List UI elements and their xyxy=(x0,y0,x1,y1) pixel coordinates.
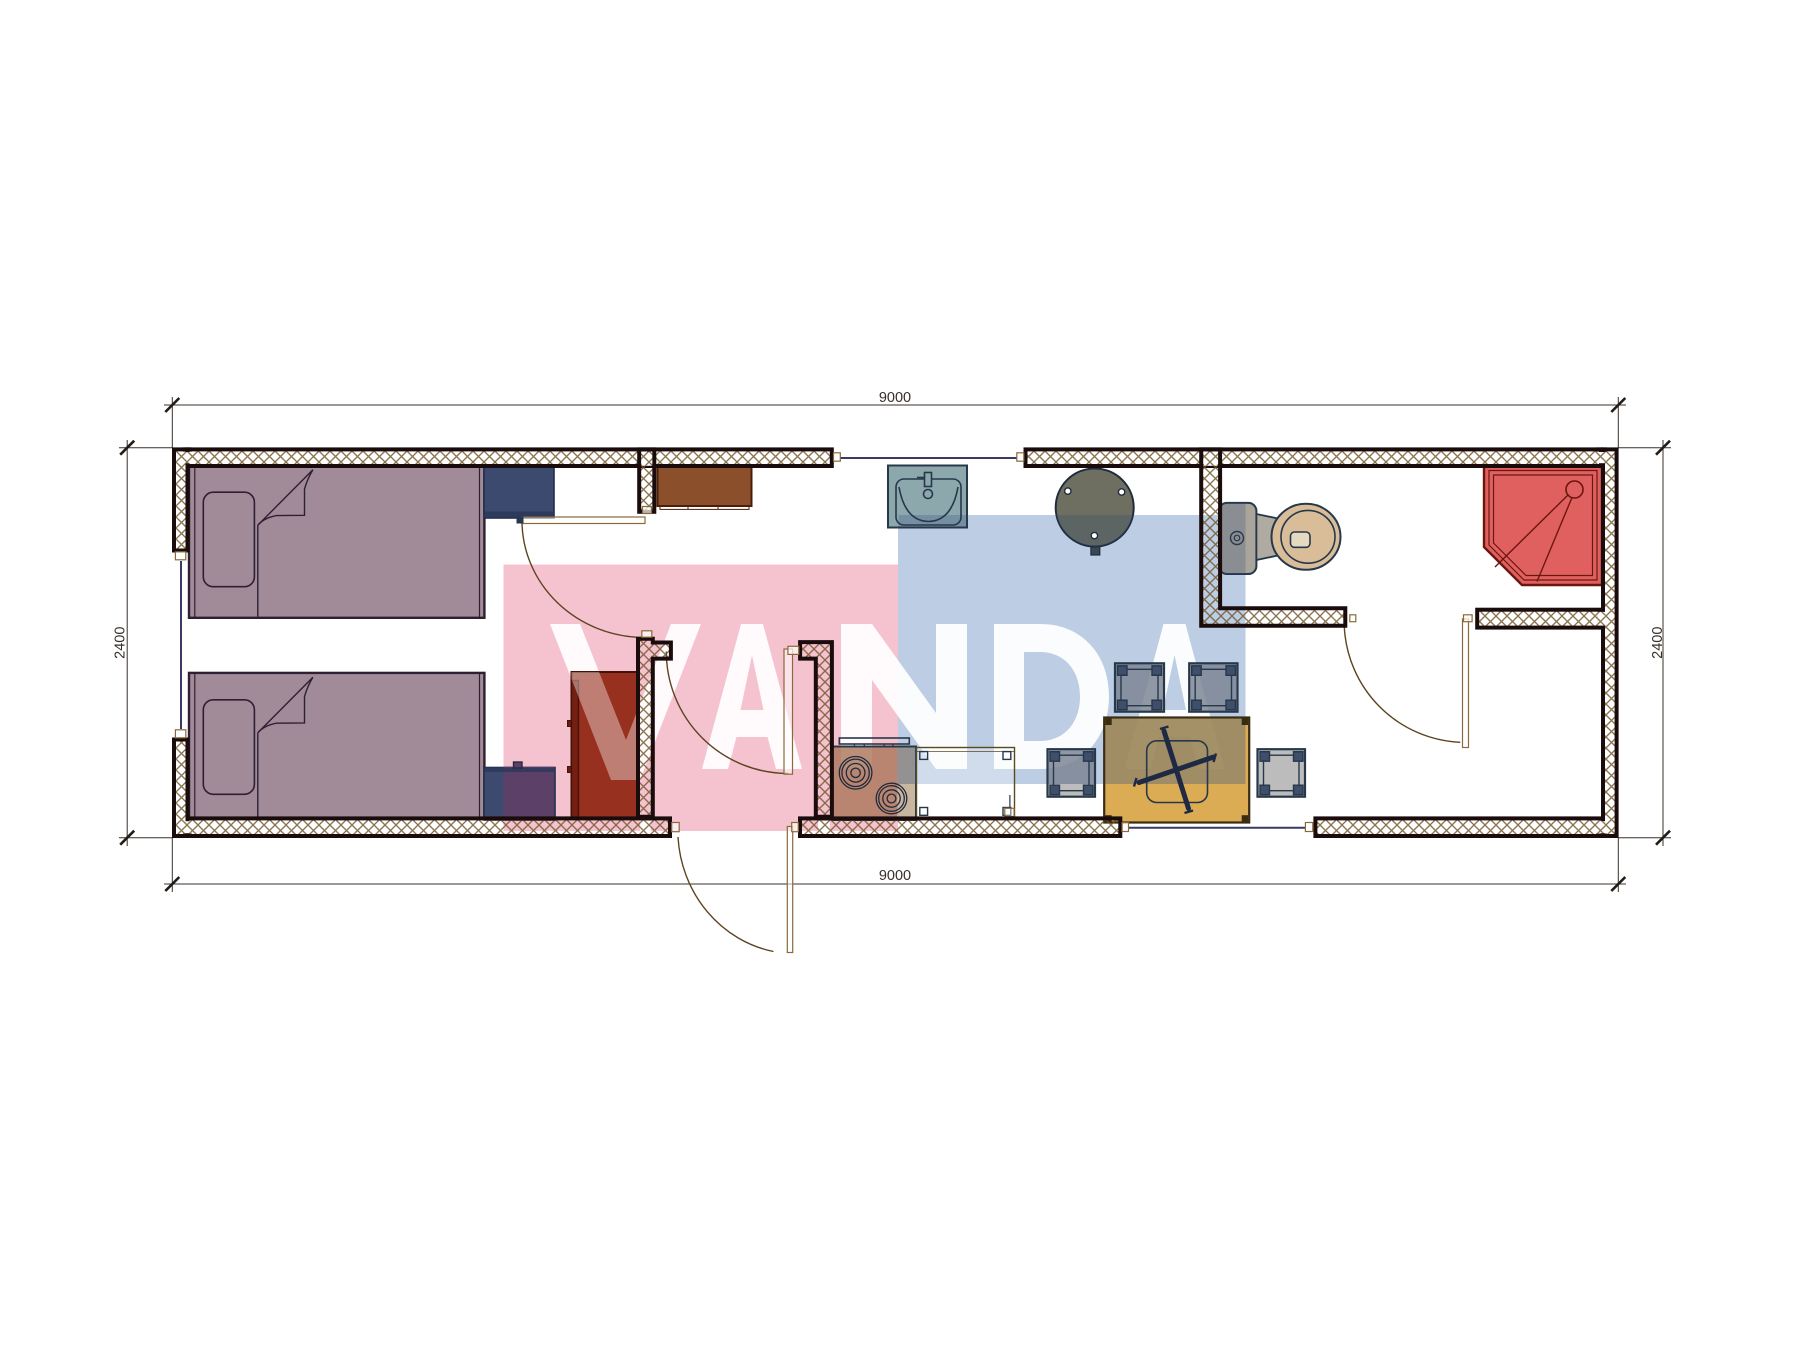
svg-text:2400: 2400 xyxy=(1650,627,1666,659)
svg-text:9000: 9000 xyxy=(879,390,911,406)
svg-text:9000: 9000 xyxy=(879,868,911,884)
svg-text:2400: 2400 xyxy=(113,627,129,659)
